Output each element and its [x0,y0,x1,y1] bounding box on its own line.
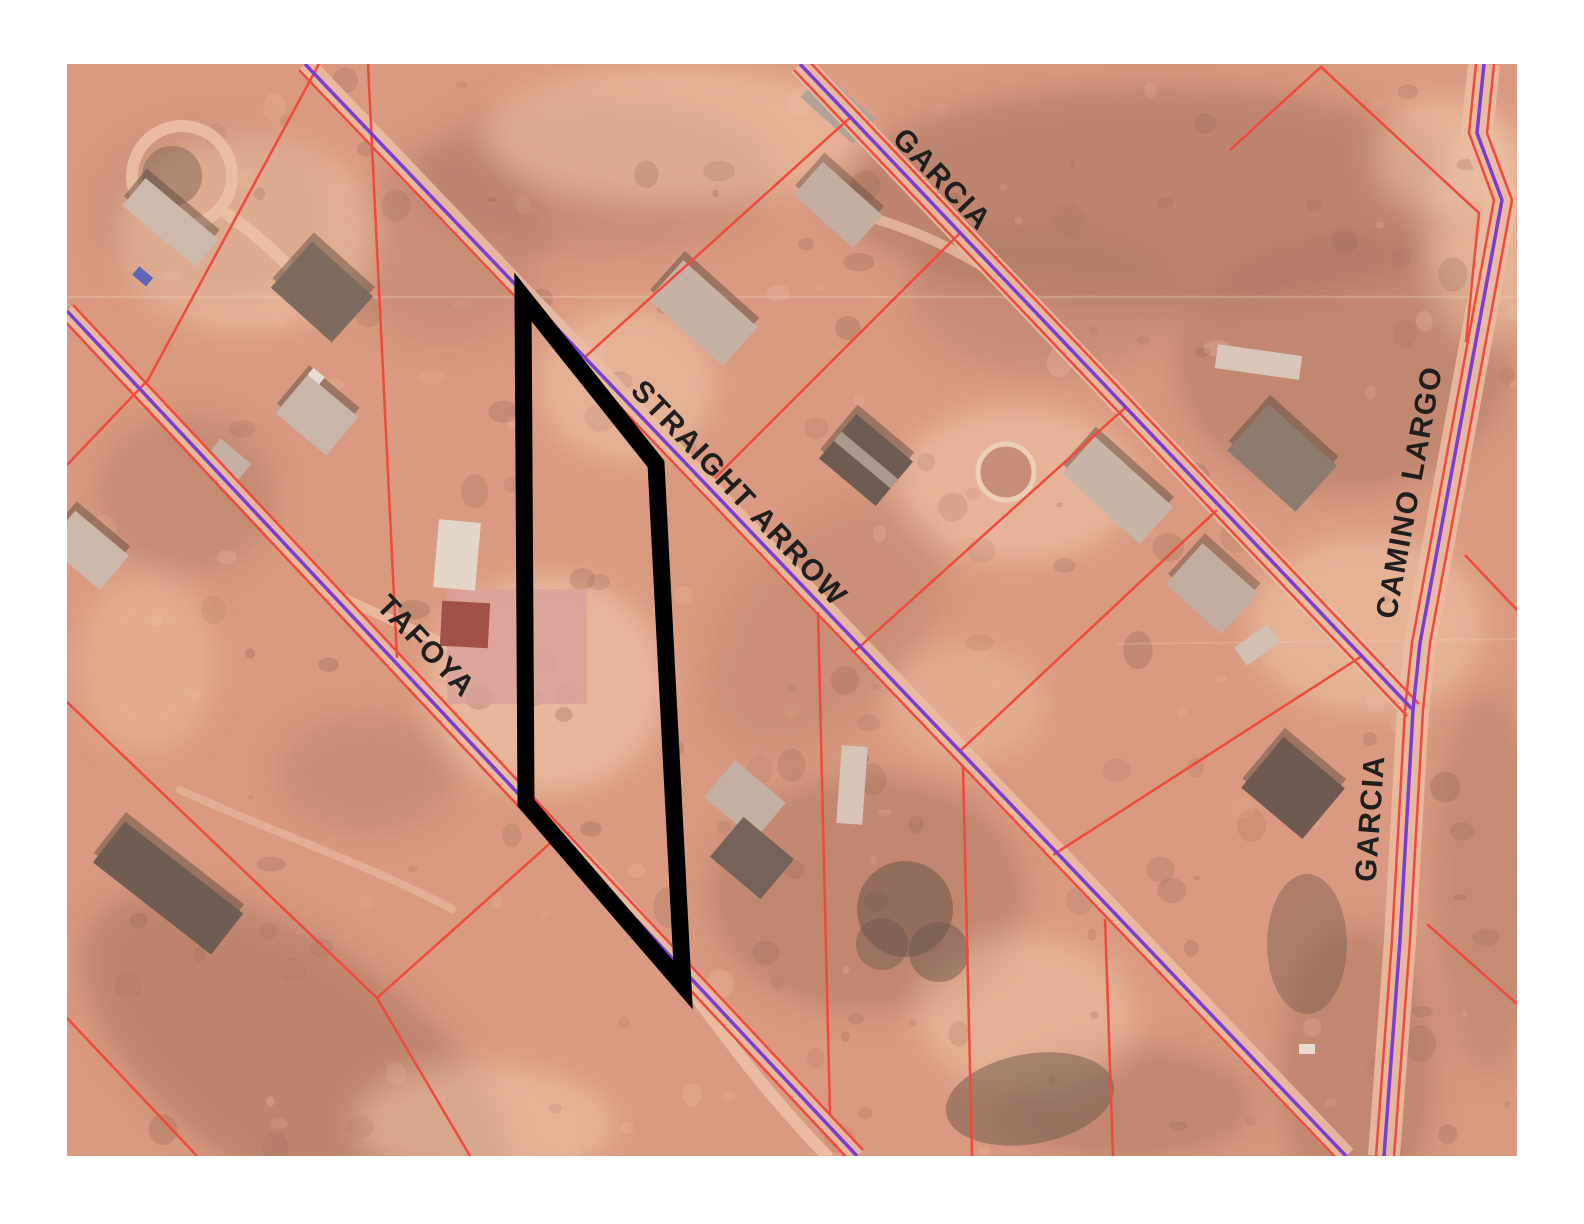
aerial-base [67,64,1517,1156]
vehicle [1299,1044,1315,1054]
parcel-map: GARCIA STRAIGHT ARROW TAFOYA CAMINO LARG… [67,64,1517,1156]
building [440,601,490,648]
page: GARCIA STRAIGHT ARROW TAFOYA CAMINO LARG… [0,0,1584,1224]
building [433,519,481,590]
map-canvas: GARCIA STRAIGHT ARROW TAFOYA CAMINO LARG… [67,64,1517,1156]
pond [978,444,1034,500]
building [836,745,867,825]
